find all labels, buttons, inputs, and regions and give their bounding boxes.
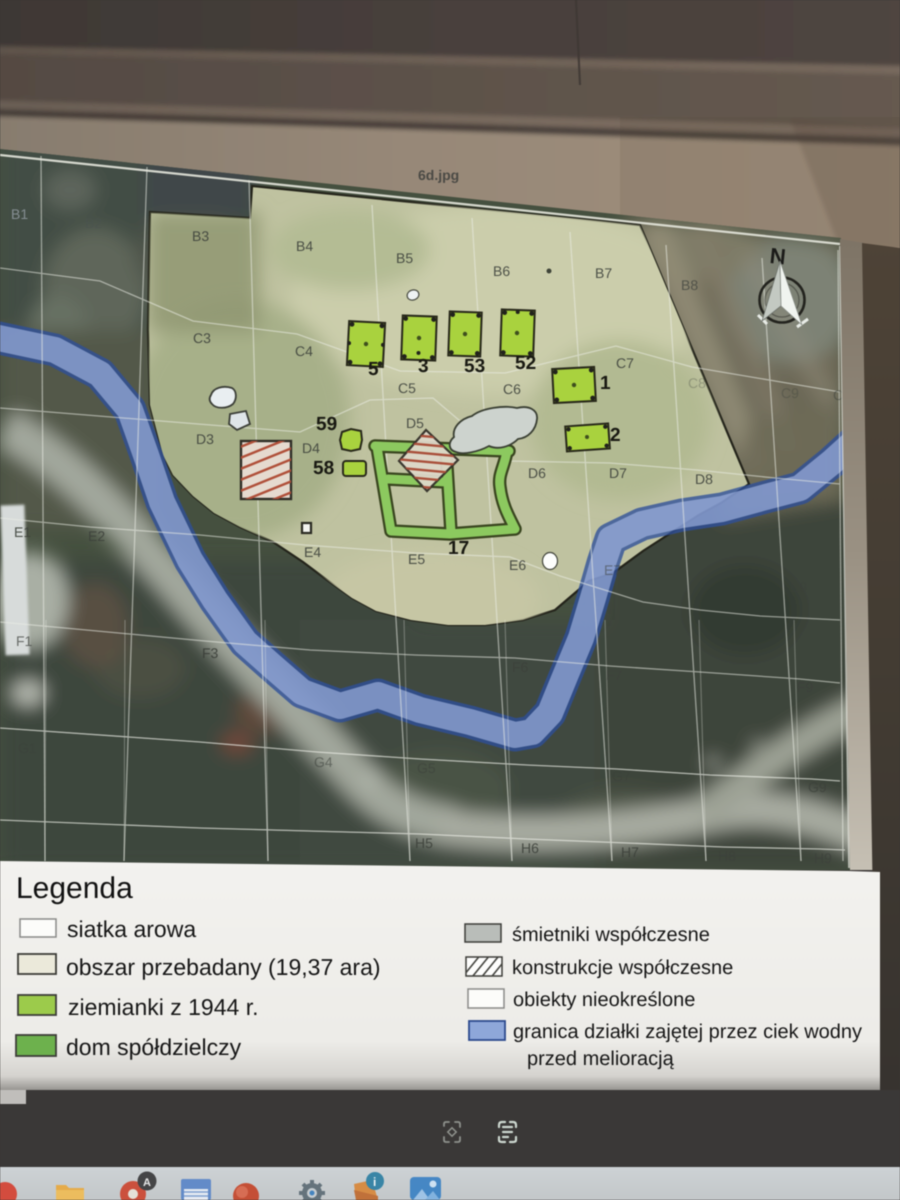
svg-text:H5: H5 (415, 835, 433, 851)
svg-text:C9: C9 (781, 385, 799, 401)
svg-text:G5: G5 (417, 760, 436, 776)
svg-text:2: 2 (610, 425, 621, 446)
svg-text:F3: F3 (202, 645, 219, 661)
svg-text:H9: H9 (814, 850, 832, 866)
svg-text:G1: G1 (18, 740, 37, 756)
svg-text:F7: F7 (606, 667, 623, 683)
svg-text:C3: C3 (193, 330, 211, 346)
svg-text:E1: E1 (14, 524, 31, 540)
svg-text:D7: D7 (609, 465, 627, 481)
svg-text:1: 1 (600, 373, 611, 394)
svg-text:59: 59 (316, 414, 337, 435)
svg-text:B8: B8 (681, 277, 698, 293)
svg-text:B3: B3 (192, 228, 209, 244)
svg-text:obiekty nieokreślone: obiekty nieokreślone (513, 989, 695, 1011)
svg-text:C6: C6 (503, 381, 521, 397)
svg-text:granica działki zajętej przez: granica działki zajętej przez ciek wodny (513, 1021, 862, 1043)
svg-text:5: 5 (368, 359, 379, 380)
svg-text:konstrukcje współczesne: konstrukcje współczesne (512, 957, 733, 979)
svg-text:G4: G4 (314, 754, 333, 770)
svg-text:C7: C7 (616, 355, 634, 371)
svg-text:17: 17 (448, 538, 469, 559)
svg-text:B1: B1 (11, 206, 28, 222)
svg-text:E5: E5 (408, 551, 425, 567)
svg-text:B4: B4 (296, 238, 313, 254)
svg-text:D6: D6 (528, 465, 546, 481)
svg-text:D8: D8 (695, 471, 713, 487)
svg-text:C4: C4 (295, 343, 313, 359)
svg-text:3: 3 (418, 356, 429, 377)
svg-text:G7: G7 (612, 768, 631, 784)
svg-text:N: N (769, 243, 787, 270)
svg-text:58: 58 (313, 458, 334, 479)
svg-text:H6: H6 (521, 840, 539, 856)
svg-text:Legenda: Legenda (16, 872, 133, 905)
svg-text:siatka arowa: siatka arowa (67, 916, 196, 942)
svg-text:A: A (143, 1177, 151, 1189)
svg-text:B2: B2 (85, 215, 102, 231)
svg-text:H7: H7 (621, 844, 639, 860)
svg-text:F1: F1 (16, 633, 33, 649)
svg-text:52: 52 (515, 353, 536, 374)
svg-text:E9: E9 (790, 579, 807, 595)
svg-text:obszar przebadany (19,37 ara): obszar przebadany (19,37 ara) (66, 954, 381, 980)
svg-text:E7: E7 (604, 562, 621, 578)
svg-text:53: 53 (464, 356, 485, 377)
svg-text:F9: F9 (797, 679, 814, 695)
svg-text:B7: B7 (595, 265, 612, 281)
svg-text:H8: H8 (718, 848, 736, 864)
svg-text:D4: D4 (302, 440, 320, 456)
svg-text:dom spółdzielczy: dom spółdzielczy (66, 1034, 242, 1060)
svg-text:6d.jpg: 6d.jpg (418, 167, 459, 183)
svg-text:D5: D5 (406, 415, 424, 431)
svg-text:i: i (373, 1175, 376, 1189)
svg-text:G9: G9 (808, 779, 827, 795)
svg-text:E2: E2 (88, 528, 105, 544)
svg-text:przed melioracją: przed melioracją (527, 1048, 675, 1070)
svg-text:C5: C5 (398, 380, 416, 396)
svg-text:B6: B6 (493, 263, 510, 279)
svg-text:B5: B5 (396, 250, 413, 266)
svg-text:śmietniki współczesne: śmietniki współczesne (512, 924, 710, 946)
svg-text:F6: F6 (512, 659, 529, 675)
svg-text:D3: D3 (196, 431, 214, 447)
svg-text:ziemianki z 1944 r.: ziemianki z 1944 r. (68, 994, 258, 1020)
svg-text:C8: C8 (688, 375, 706, 391)
svg-text:E4: E4 (304, 544, 321, 560)
svg-text:E6: E6 (509, 557, 526, 573)
